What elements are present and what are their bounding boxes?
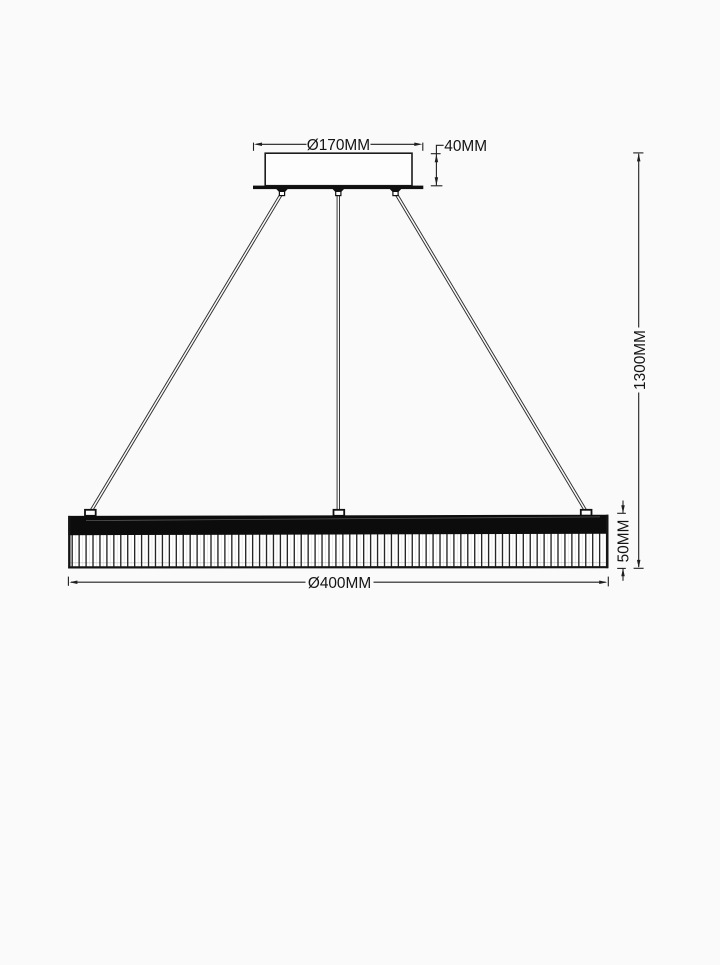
svg-text:Ø400MM: Ø400MM bbox=[308, 575, 371, 592]
svg-text:40MM: 40MM bbox=[444, 138, 487, 155]
svg-text:1300MM: 1300MM bbox=[632, 330, 649, 390]
svg-text:Ø170MM: Ø170MM bbox=[307, 137, 370, 154]
svg-text:50MM: 50MM bbox=[615, 520, 632, 563]
